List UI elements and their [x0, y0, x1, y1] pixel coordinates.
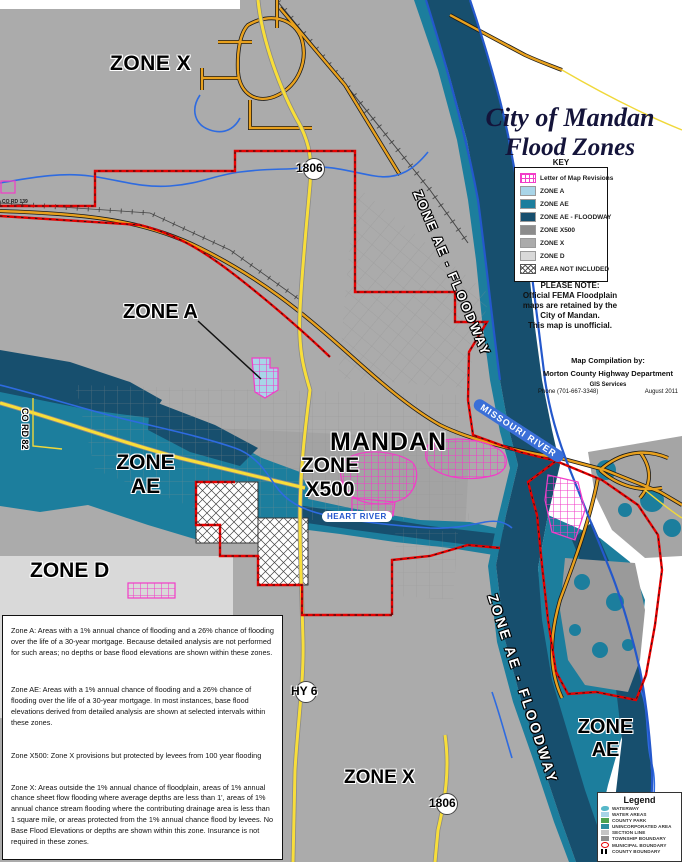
note-line: PLEASE NOTE:	[494, 281, 646, 291]
please-note-block: PLEASE NOTE: Official FEMA Floodplain ma…	[494, 281, 646, 331]
zone-d-label: ZONE D	[30, 559, 109, 583]
zone-x500-description: Zone X500: Zone X provisions but protect…	[11, 751, 274, 762]
heart-river-label: HEART RIVER	[322, 511, 392, 522]
key-item: ZONE AE - FLOODWAY	[520, 212, 603, 222]
zone-ae-label-right: ZONE AE	[563, 716, 648, 762]
credits-block: Map Compilation by: Morton County Highwa…	[538, 356, 678, 395]
credits-title: Map Compilation by:	[538, 356, 678, 365]
note-line: This map is unofficial.	[494, 321, 646, 331]
legend-item: SECTION LINE	[601, 830, 678, 835]
key-item: ZONE X500	[520, 225, 603, 235]
zone-a-swatch	[520, 186, 536, 196]
note-line: Official FEMA Floodplain	[494, 291, 646, 301]
co-rd-82-label: CO RD 82	[20, 408, 30, 450]
credits-date: August 2011	[645, 389, 678, 395]
zone-x-swatch	[520, 238, 536, 248]
legend-item: COUNTY PARK	[601, 818, 678, 823]
area-not-included-swatch-icon	[520, 264, 536, 274]
credits-services: GIS Services	[538, 382, 678, 388]
map-page: City of Mandan Flood Zones KEY Letter of…	[0, 0, 682, 862]
legend-item: MUNICIPAL BOUNDARY	[601, 842, 678, 848]
zone-ae-description: Zone AE: Areas with a 1% annual chance o…	[11, 685, 274, 729]
legend-item: COUNTY BOUNDARY	[601, 849, 678, 854]
zone-x-label-top: ZONE X	[110, 52, 191, 76]
note-line: City of Mandan.	[494, 311, 646, 321]
zone-descriptions-box: Zone A: Areas with a 1% annual chance of…	[2, 615, 283, 860]
legend-heading: Legend	[601, 795, 678, 805]
zone-d-swatch	[520, 251, 536, 261]
key-item: ZONE A	[520, 186, 603, 196]
unincorporated-area-icon	[601, 824, 609, 829]
zone-a-label: ZONE A	[123, 301, 198, 324]
key-item: ZONE D	[520, 251, 603, 261]
zone-ae-label-left: ZONE AE	[103, 451, 188, 499]
key-heading: KEY	[515, 158, 607, 167]
waterway-icon	[601, 806, 609, 811]
municipal-boundary-icon	[601, 842, 609, 848]
zone-x500-label: ZONE X500	[288, 454, 372, 502]
zone-ae-floodway-swatch	[520, 212, 536, 222]
legend-item: WATER AREAS	[601, 812, 678, 817]
zone-a-description: Zone A: Areas with a 1% annual chance of…	[11, 626, 274, 659]
key-item: AREA NOT INCLUDED	[520, 264, 603, 274]
zone-x500-swatch	[520, 225, 536, 235]
legend-item: TOWNSHIP BOUNDARY	[601, 836, 678, 841]
zone-x-label-bottom: ZONE X	[344, 767, 415, 789]
key-item: Letter of Map Revisions	[520, 173, 603, 183]
highway-1806-label-top: 1806	[296, 161, 323, 175]
lomr-swatch-icon	[520, 173, 536, 183]
section-line-icon	[601, 830, 609, 835]
map-title-line1: City of Mandan	[458, 104, 682, 133]
zone-ae-swatch	[520, 199, 536, 209]
note-line: maps are retained by the	[494, 301, 646, 311]
map-title: City of Mandan Flood Zones	[458, 104, 682, 163]
highway-1806-label-bottom: 1806	[429, 796, 456, 810]
legend-item: WATERWAY	[601, 806, 678, 811]
mandan-label: MANDAN	[330, 428, 447, 457]
township-boundary-icon	[601, 836, 609, 841]
legend-box: Legend WATERWAY WATER AREAS COUNTY PARK …	[597, 792, 682, 862]
county-boundary-icon	[601, 849, 609, 854]
water-areas-icon	[601, 812, 609, 817]
legend-item: UNINCORPORATED AREA	[601, 824, 678, 829]
key-box: Letter of Map Revisions ZONE A ZONE AE Z…	[514, 167, 608, 282]
key-item: ZONE X	[520, 238, 603, 248]
credits-department: Morton County Highway Department	[538, 369, 678, 378]
county-park-icon	[601, 818, 609, 823]
zone-x-description: Zone X: Areas outside the 1% annual chan…	[11, 783, 274, 849]
co-rd-139-label: CO RD 139	[2, 199, 28, 205]
key-item: ZONE AE	[520, 199, 603, 209]
highway-hy6-label: HY 6	[291, 684, 317, 698]
credits-phone: Phone (701-667-3348)	[538, 389, 598, 395]
